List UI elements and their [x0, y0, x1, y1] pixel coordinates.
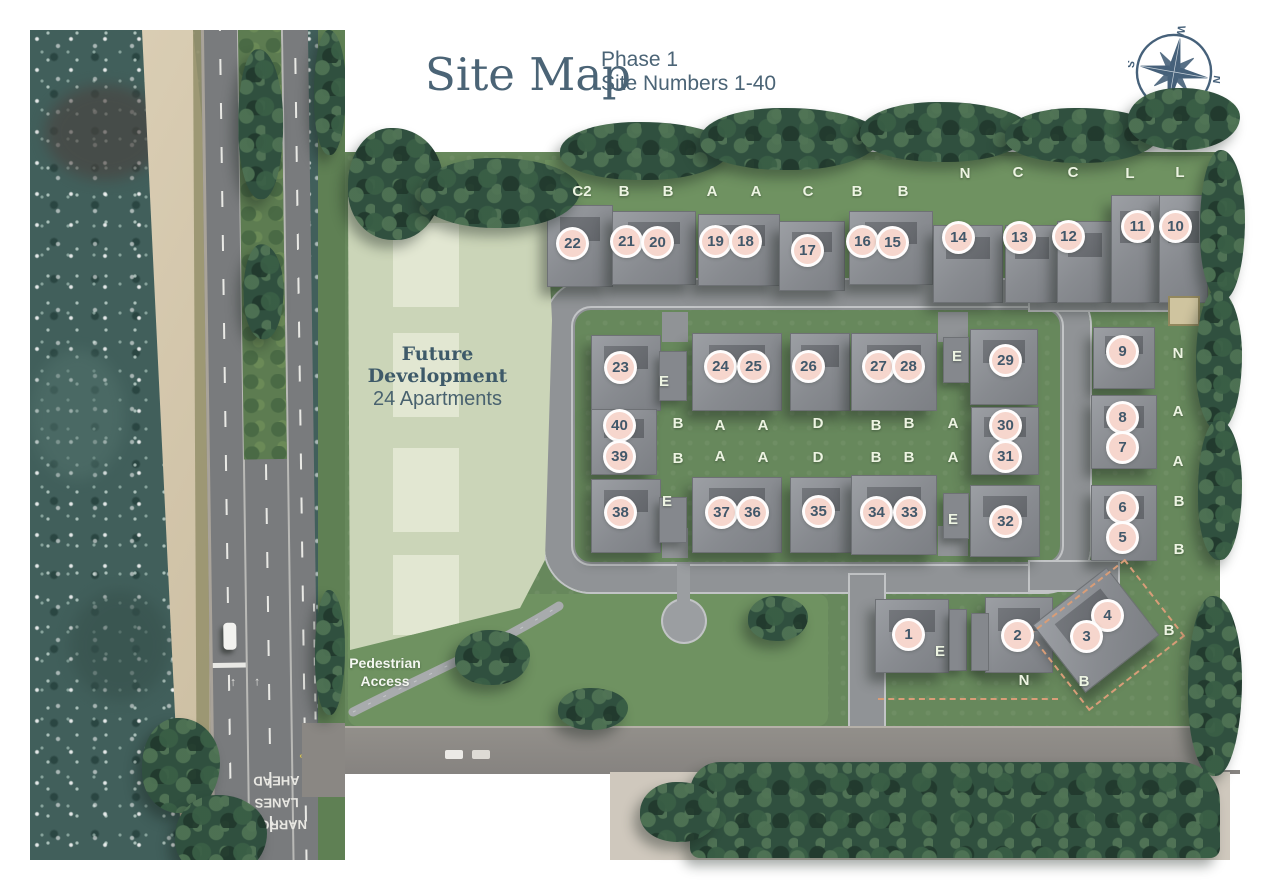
- plot-marker-27[interactable]: 27: [862, 350, 895, 383]
- plot-marker-5[interactable]: 5: [1106, 521, 1139, 554]
- plot-marker-40[interactable]: 40: [603, 409, 636, 442]
- plot-marker-38[interactable]: 38: [604, 496, 637, 529]
- plot-marker-17[interactable]: 17: [791, 234, 824, 267]
- plot-marker-21[interactable]: 21: [610, 225, 643, 258]
- site-map-page: Site Map Phase 1 Site Numbers 1-40 N: [0, 0, 1280, 890]
- plot-marker-22[interactable]: 22: [556, 227, 589, 260]
- plot-marker-35[interactable]: 35: [802, 495, 835, 528]
- plot-marker-30[interactable]: 30: [989, 409, 1022, 442]
- plot-marker-10[interactable]: 10: [1159, 210, 1192, 243]
- plot-marker-23[interactable]: 23: [604, 351, 637, 384]
- plot-marker-18[interactable]: 18: [729, 225, 762, 258]
- plot-marker-6[interactable]: 6: [1106, 491, 1139, 524]
- plot-marker-14[interactable]: 14: [942, 221, 975, 254]
- plot-marker-36[interactable]: 36: [736, 496, 769, 529]
- plot-marker-12[interactable]: 12: [1052, 220, 1085, 253]
- plot-marker-37[interactable]: 37: [705, 496, 738, 529]
- plot-marker-28[interactable]: 28: [892, 350, 925, 383]
- plot-marker-8[interactable]: 8: [1106, 401, 1139, 434]
- plot-marker-33[interactable]: 33: [893, 496, 926, 529]
- plot-marker-29[interactable]: 29: [989, 344, 1022, 377]
- plot-marker-20[interactable]: 20: [641, 226, 674, 259]
- plot-marker-26[interactable]: 26: [792, 350, 825, 383]
- plot-marker-2[interactable]: 2: [1001, 619, 1034, 652]
- plot-marker-15[interactable]: 15: [876, 226, 909, 259]
- plot-marker-19[interactable]: 19: [699, 225, 732, 258]
- plot-marker-24[interactable]: 24: [704, 350, 737, 383]
- plot-marker-32[interactable]: 32: [989, 505, 1022, 538]
- plot-marker-34[interactable]: 34: [860, 496, 893, 529]
- plot-marker-31[interactable]: 31: [989, 440, 1022, 473]
- plot-marker-11[interactable]: 11: [1121, 210, 1154, 243]
- plot-marker-3[interactable]: 3: [1070, 620, 1103, 653]
- plot-marker-7[interactable]: 7: [1106, 431, 1139, 464]
- plot-marker-13[interactable]: 13: [1003, 221, 1036, 254]
- plot-marker-39[interactable]: 39: [603, 440, 636, 473]
- plot-marker-16[interactable]: 16: [846, 225, 879, 258]
- plot-marker-1[interactable]: 1: [892, 618, 925, 651]
- plot-markers-layer: 2221201918171615141312111023242526272829…: [0, 0, 1280, 890]
- plot-marker-25[interactable]: 25: [737, 350, 770, 383]
- plot-marker-9[interactable]: 9: [1106, 335, 1139, 368]
